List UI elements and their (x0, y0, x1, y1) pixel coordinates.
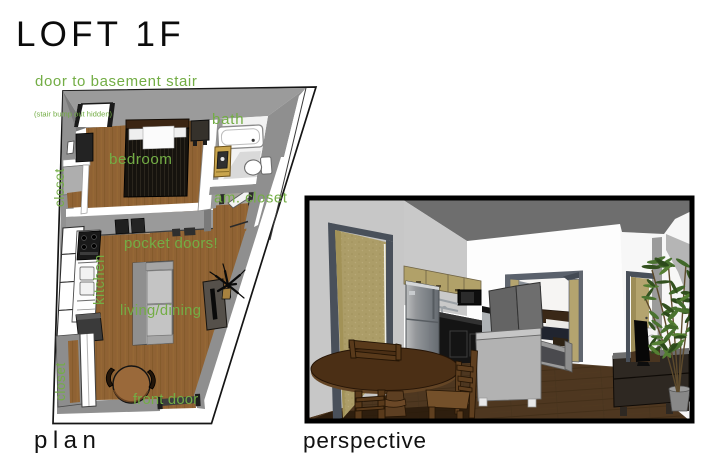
svg-text:plan: plan (34, 427, 101, 454)
svg-text:door to basement stair: door to basement stair (35, 73, 197, 90)
svg-text:(stair bump out hidden): (stair bump out hidden) (34, 110, 113, 119)
svg-text:bath: bath (212, 111, 244, 128)
svg-text:perspective: perspective (303, 428, 427, 453)
svg-text:living/dining: living/dining (120, 303, 201, 319)
svg-text:kitchen: kitchen (92, 254, 108, 305)
svg-text:LOFT 1F: LOFT 1F (16, 15, 185, 54)
svg-text:closet: closet (53, 362, 68, 401)
svg-text:pocket doors!: pocket doors! (124, 235, 218, 252)
svg-text:bedroom: bedroom (109, 151, 172, 168)
svg-text:closet: closet (52, 168, 67, 207)
svg-text:am. closet: am. closet (214, 190, 288, 207)
svg-text:front door: front door (133, 392, 198, 408)
